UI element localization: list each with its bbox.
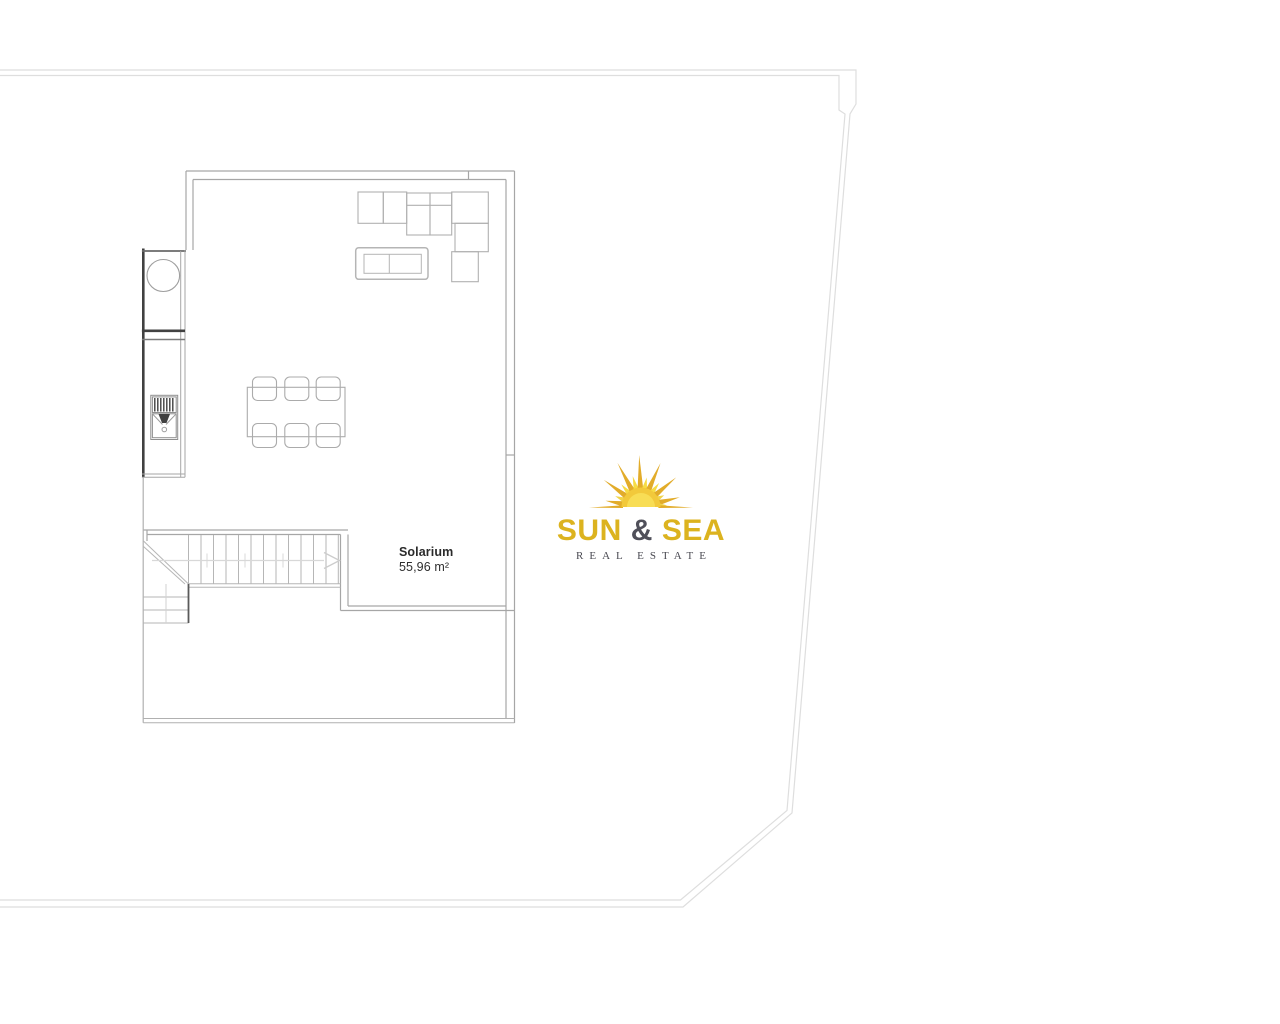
terrace-outline bbox=[143, 719, 514, 723]
logo-word-sun: SUN bbox=[557, 516, 622, 546]
room-area-label: 55,96 m² bbox=[399, 560, 449, 574]
sofa-sectional bbox=[358, 192, 488, 282]
dining-table bbox=[247, 387, 345, 436]
dining-chair bbox=[253, 377, 277, 401]
stair-direction-guide bbox=[152, 553, 340, 569]
room-name-label: Solarium bbox=[399, 545, 453, 559]
kitchen-unit bbox=[142, 249, 186, 478]
sun-and-sea-logo: SUN & SEA REAL ESTATE bbox=[546, 446, 736, 571]
coffee-table bbox=[356, 248, 428, 280]
sun-rays-icon bbox=[581, 449, 701, 511]
dining-chair bbox=[253, 424, 277, 448]
dining-set bbox=[247, 377, 345, 448]
dining-chair bbox=[285, 377, 309, 401]
dining-chair bbox=[316, 424, 340, 448]
logo-wordmark: SUN & SEA bbox=[546, 516, 736, 546]
floor-plan-page: Solarium 55,96 m² bbox=[0, 0, 1280, 1024]
logo-subtitle: REAL ESTATE bbox=[546, 550, 736, 562]
dining-chair bbox=[285, 424, 309, 448]
basin-circle-icon bbox=[147, 260, 180, 292]
dining-chair bbox=[316, 377, 340, 401]
staircase bbox=[143, 535, 340, 623]
winder-steps bbox=[143, 584, 188, 623]
logo-word-sea: SEA bbox=[662, 516, 725, 546]
sink-unit-icon bbox=[151, 395, 178, 439]
logo-ampersand: & bbox=[631, 516, 653, 546]
